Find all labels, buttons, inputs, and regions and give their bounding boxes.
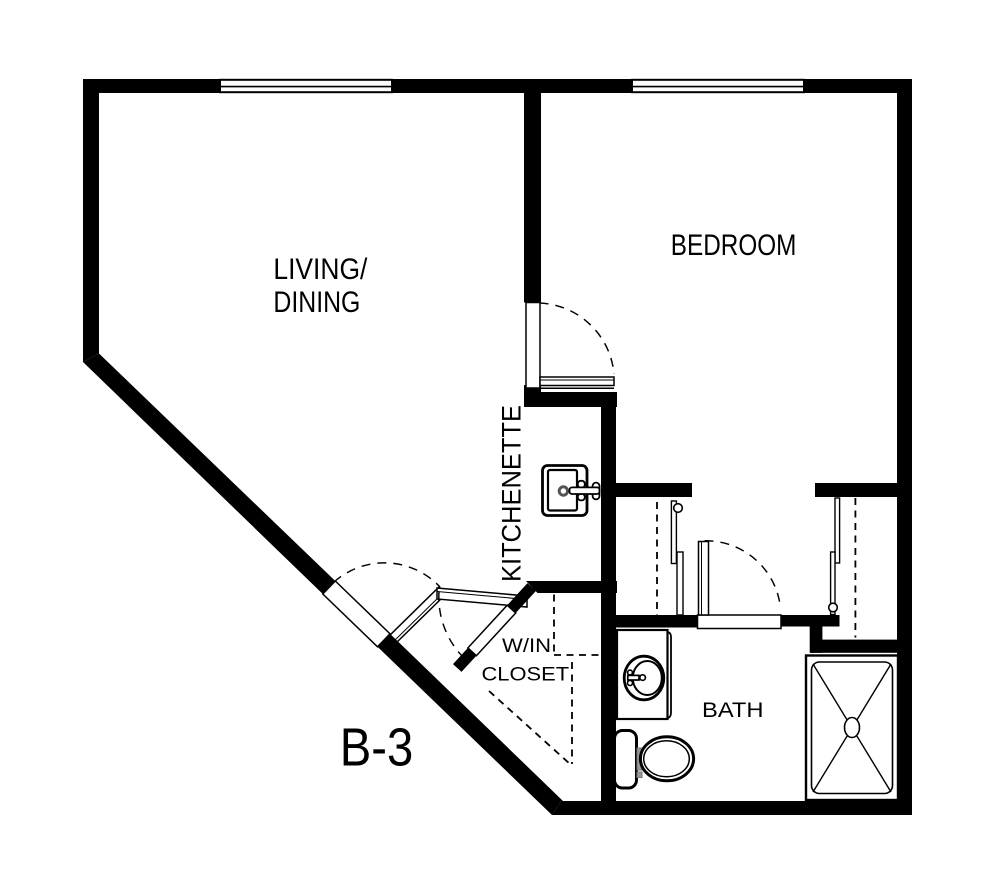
svg-text:W/IN: W/IN: [502, 636, 551, 657]
svg-text:BATH: BATH: [702, 699, 764, 722]
svg-text:DINING: DINING: [273, 286, 360, 319]
svg-text:B-3: B-3: [340, 718, 414, 778]
svg-text:BEDROOM: BEDROOM: [671, 229, 797, 262]
svg-text:CLOSET: CLOSET: [482, 664, 570, 686]
svg-text:KITCHENETTE: KITCHENETTE: [497, 405, 527, 582]
svg-text:LIVING/: LIVING/: [273, 253, 368, 286]
